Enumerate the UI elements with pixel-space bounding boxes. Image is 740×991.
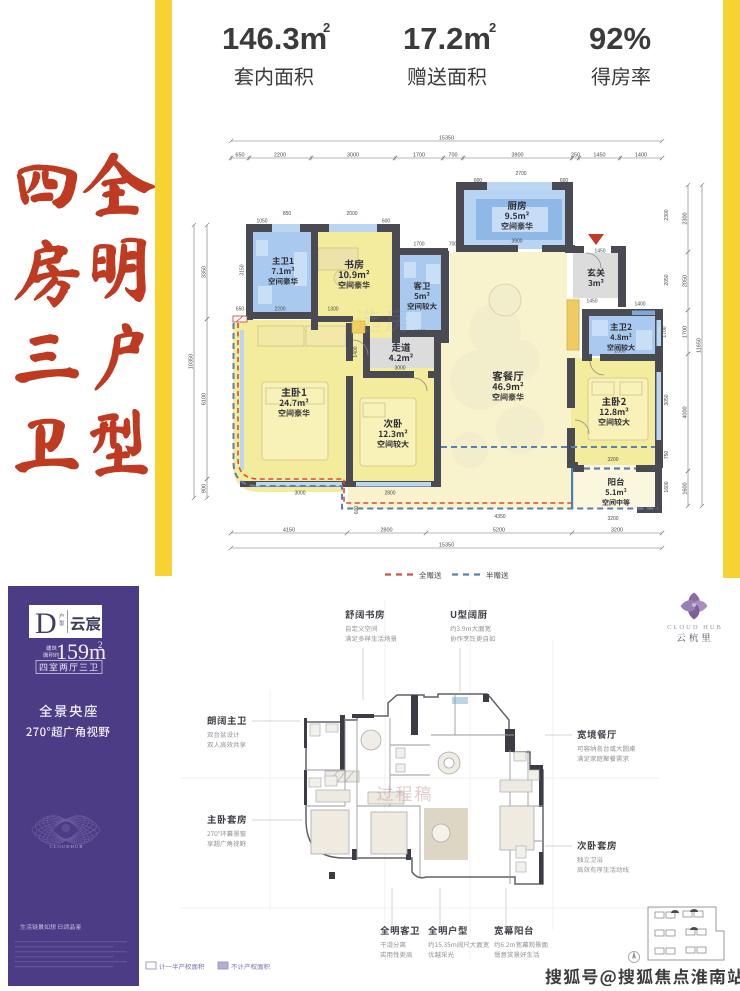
svg-text:1050: 1050	[256, 219, 267, 225]
svg-text:CLOUD HUB: CLOUD HUB	[667, 624, 723, 631]
svg-text:3050: 3050	[664, 394, 670, 405]
svg-text:2800: 2800	[384, 491, 395, 497]
svg-text:850: 850	[283, 211, 292, 217]
svg-text:2: 2	[323, 20, 330, 35]
svg-text:800: 800	[434, 456, 440, 465]
svg-text:2800: 2800	[380, 528, 392, 534]
svg-text:700: 700	[449, 242, 458, 248]
svg-text:2200: 2200	[274, 153, 286, 159]
svg-text:3000: 3000	[394, 366, 405, 372]
svg-text:4000: 4000	[683, 406, 689, 418]
svg-text:4350: 4350	[494, 514, 505, 520]
svg-text:1450: 1450	[593, 153, 605, 159]
svg-text:17.2m: 17.2m	[403, 21, 491, 56]
svg-text:D: D	[35, 607, 57, 640]
svg-text:15350: 15350	[439, 136, 454, 142]
svg-text:1700: 1700	[413, 242, 424, 248]
svg-text:4150: 4150	[283, 528, 295, 534]
svg-text:1400: 1400	[635, 153, 647, 159]
svg-text:2: 2	[489, 20, 496, 35]
svg-text:1600: 1600	[664, 481, 670, 492]
svg-text:3900: 3900	[511, 239, 522, 245]
svg-text:2950: 2950	[443, 289, 449, 300]
svg-text:1400: 1400	[634, 302, 645, 308]
svg-text:2050: 2050	[683, 275, 689, 287]
svg-text:2200: 2200	[274, 307, 285, 313]
svg-text:3900: 3900	[511, 153, 523, 159]
svg-text:900: 900	[202, 484, 208, 493]
svg-text:3200: 3200	[607, 516, 618, 522]
svg-text:1450: 1450	[594, 249, 605, 255]
svg-text:2700: 2700	[515, 171, 526, 177]
svg-text:650: 650	[235, 153, 244, 159]
svg-text:11650: 11650	[697, 338, 703, 353]
svg-text:3450: 3450	[347, 414, 353, 425]
svg-text:1700: 1700	[683, 326, 689, 338]
svg-text:600: 600	[560, 178, 569, 184]
svg-text:3200: 3200	[611, 528, 623, 534]
svg-text:C L O U D H U B: C L O U D H U B	[50, 844, 83, 849]
svg-text:3150: 3150	[240, 264, 246, 275]
svg-text:1300: 1300	[327, 307, 338, 313]
svg-text:1300: 1300	[414, 330, 425, 336]
svg-text:2300: 2300	[664, 209, 670, 220]
svg-text:6100: 6100	[202, 393, 208, 405]
svg-text:3150: 3150	[312, 264, 318, 275]
svg-text:650: 650	[236, 307, 245, 313]
svg-text:3000: 3000	[347, 153, 359, 159]
svg-text:146.3m: 146.3m	[222, 21, 327, 56]
svg-text:2: 2	[98, 640, 103, 650]
svg-text:2450: 2450	[434, 394, 440, 405]
svg-text:10350: 10350	[189, 354, 195, 369]
svg-text:1600: 1600	[683, 482, 689, 494]
svg-text:1400: 1400	[353, 346, 359, 357]
svg-text:3000: 3000	[294, 491, 305, 497]
svg-text:2300: 2300	[683, 212, 689, 224]
svg-text:1700: 1700	[413, 153, 425, 159]
svg-text:5200: 5200	[493, 528, 505, 534]
svg-text:600: 600	[474, 178, 483, 184]
svg-text:1700: 1700	[662, 326, 668, 337]
svg-text:700: 700	[448, 153, 457, 159]
svg-text:3350: 3350	[202, 266, 208, 278]
svg-text:3200: 3200	[607, 457, 618, 463]
svg-text:2000: 2000	[346, 211, 357, 217]
svg-text:15350: 15350	[439, 543, 454, 549]
svg-text:600: 600	[382, 219, 391, 225]
svg-text:2050: 2050	[664, 274, 670, 285]
svg-text:1450: 1450	[586, 299, 597, 305]
svg-text:600: 600	[354, 506, 360, 515]
svg-text:2650: 2650	[614, 349, 625, 355]
svg-text:750: 750	[664, 451, 670, 460]
svg-text:92%: 92%	[589, 21, 651, 56]
